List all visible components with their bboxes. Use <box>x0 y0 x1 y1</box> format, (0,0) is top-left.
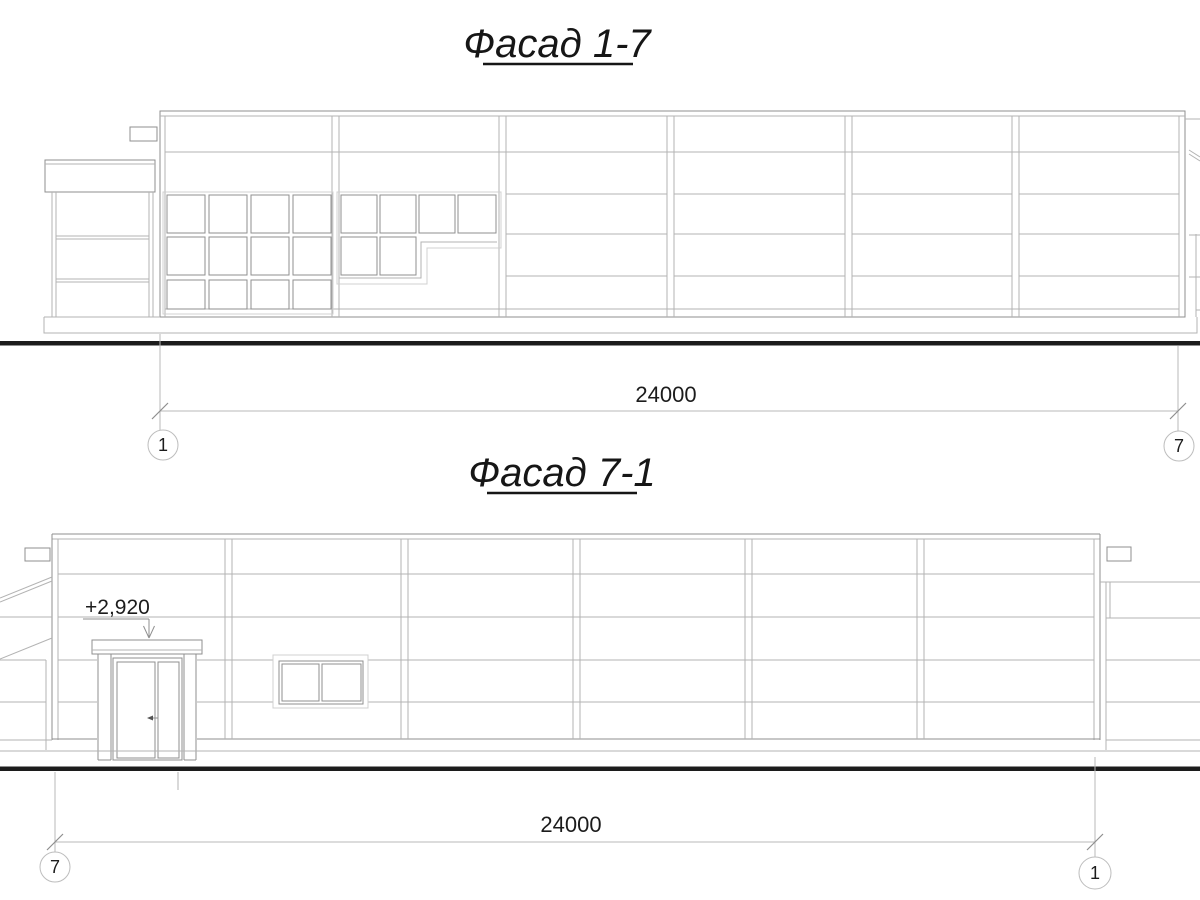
elevation-drawing-svg: Фасад 1-7 <box>0 0 1200 900</box>
right-annex-bottom <box>1100 547 1200 750</box>
door-canopy <box>92 640 202 654</box>
axis-top-right-label: 7 <box>1174 436 1184 456</box>
axis-top-left-label: 1 <box>158 435 168 455</box>
left-annex-bottom <box>0 548 52 750</box>
window-pane-right <box>322 664 361 701</box>
facade-1-7-view: Фасад 1-7 <box>0 22 1200 461</box>
facade-7-1-title: Фасад 7-1 <box>468 451 655 495</box>
dimension-bottom: 24000 <box>47 757 1103 857</box>
dimension-top-value: 24000 <box>635 382 696 407</box>
axis-bubble-bottom-left: 7 <box>40 852 70 882</box>
roof-vent-stack-bottom-left <box>25 548 50 561</box>
building-outline-bottom <box>52 534 1100 740</box>
dimension-bottom-value: 24000 <box>540 812 601 837</box>
axis-bubble-top-left: 1 <box>148 430 178 460</box>
ground-line-top <box>0 341 1200 346</box>
axis-bubble-bottom-right: 1 <box>1079 857 1111 889</box>
pilaster-lines-bottom <box>225 539 924 739</box>
window-grid-bay2 <box>337 192 501 284</box>
door-leaf-left <box>117 662 155 758</box>
dimension-top: 24000 <box>152 334 1186 431</box>
roof-vent-stack-bottom-right <box>1107 547 1131 561</box>
elevation-mark-value: +2,920 <box>85 596 150 619</box>
axis-bubble-top-right: 7 <box>1164 431 1194 461</box>
ground-line-bottom <box>0 767 1200 772</box>
axis-bottom-right-label: 1 <box>1090 863 1100 883</box>
facade-1-7-title: Фасад 1-7 <box>463 22 652 66</box>
door-handle-arrow <box>147 716 153 721</box>
drawing-canvas: Фасад 1-7 <box>0 0 1200 900</box>
elevation-mark: +2,920 <box>83 596 155 638</box>
window-grid-bay1 <box>163 192 333 314</box>
panel-joint-lines-top <box>165 152 1179 309</box>
pilaster-lines-top <box>332 116 1019 317</box>
left-annex-top <box>45 160 155 317</box>
door-leaf-right <box>158 662 179 758</box>
window-bay2-bottom <box>273 655 368 708</box>
plinth-top <box>44 317 1197 333</box>
building-outline-top <box>160 111 1185 317</box>
panel-joint-lines-bottom <box>58 574 1094 702</box>
door-frame <box>113 658 182 760</box>
right-annex-cut-top <box>1185 119 1200 317</box>
axis-bottom-left-label: 7 <box>50 857 60 877</box>
facade-7-1-view: Фасад 7-1 <box>0 451 1200 889</box>
window-pane-left <box>282 664 319 701</box>
roof-vent-stack-top <box>130 127 157 141</box>
